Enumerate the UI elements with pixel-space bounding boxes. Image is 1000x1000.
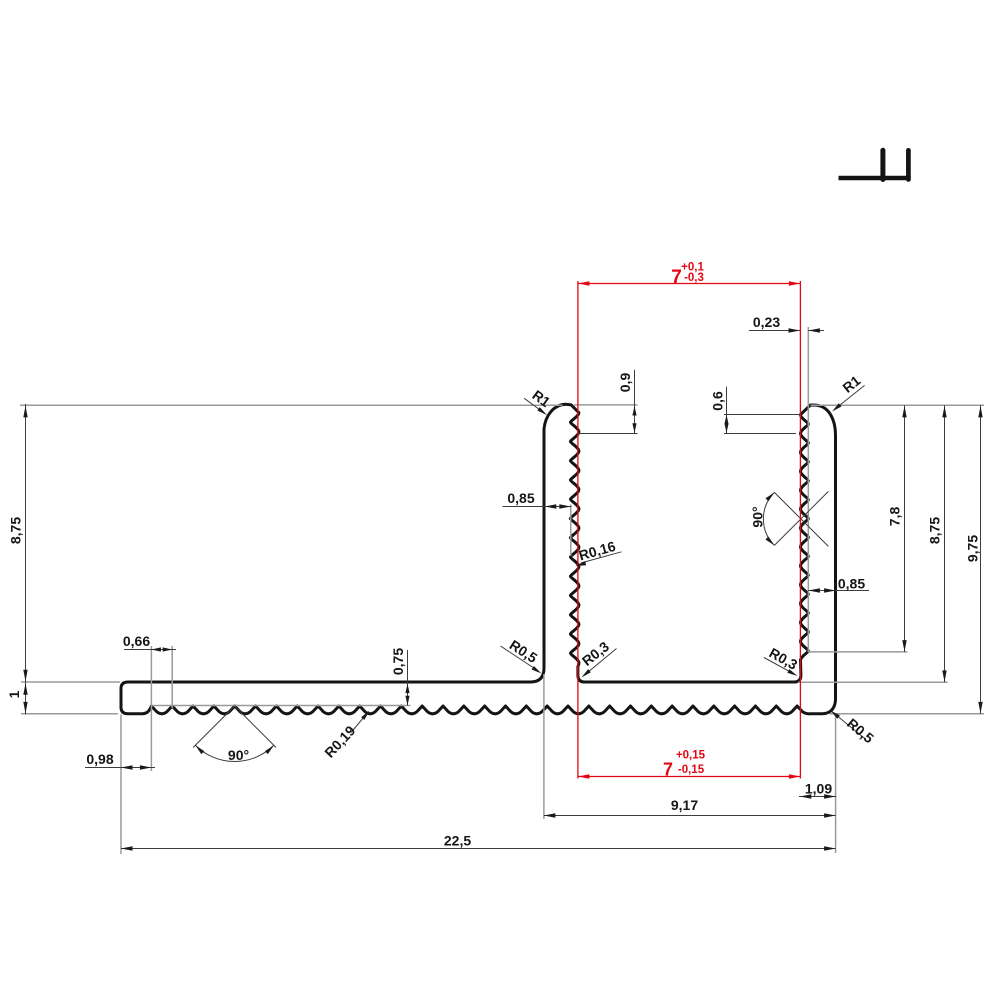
svg-text:0,85: 0,85 bbox=[507, 490, 534, 506]
svg-text:+0,15: +0,15 bbox=[676, 749, 706, 761]
svg-text:0,23: 0,23 bbox=[753, 314, 780, 330]
svg-text:0,98: 0,98 bbox=[86, 751, 113, 767]
svg-text:9,75: 9,75 bbox=[965, 535, 981, 562]
svg-text:90°: 90° bbox=[228, 747, 249, 763]
svg-text:0,85: 0,85 bbox=[838, 575, 865, 591]
svg-text:1: 1 bbox=[6, 690, 22, 698]
svg-text:0,6: 0,6 bbox=[710, 391, 726, 411]
svg-text:0,75: 0,75 bbox=[390, 648, 406, 675]
svg-text:7,8: 7,8 bbox=[887, 507, 903, 527]
svg-text:0,9: 0,9 bbox=[617, 373, 633, 393]
svg-text:-0,15: -0,15 bbox=[678, 764, 705, 776]
svg-text:8,75: 8,75 bbox=[927, 517, 943, 544]
svg-text:9,17: 9,17 bbox=[671, 797, 698, 813]
svg-text:8,75: 8,75 bbox=[8, 517, 24, 544]
svg-text:22,5: 22,5 bbox=[444, 833, 471, 849]
svg-text:7: 7 bbox=[663, 760, 673, 780]
svg-text:0,66: 0,66 bbox=[123, 633, 150, 649]
svg-text:-0,3: -0,3 bbox=[684, 272, 704, 284]
svg-text:90°: 90° bbox=[750, 506, 766, 527]
svg-text:1,09: 1,09 bbox=[805, 781, 832, 797]
